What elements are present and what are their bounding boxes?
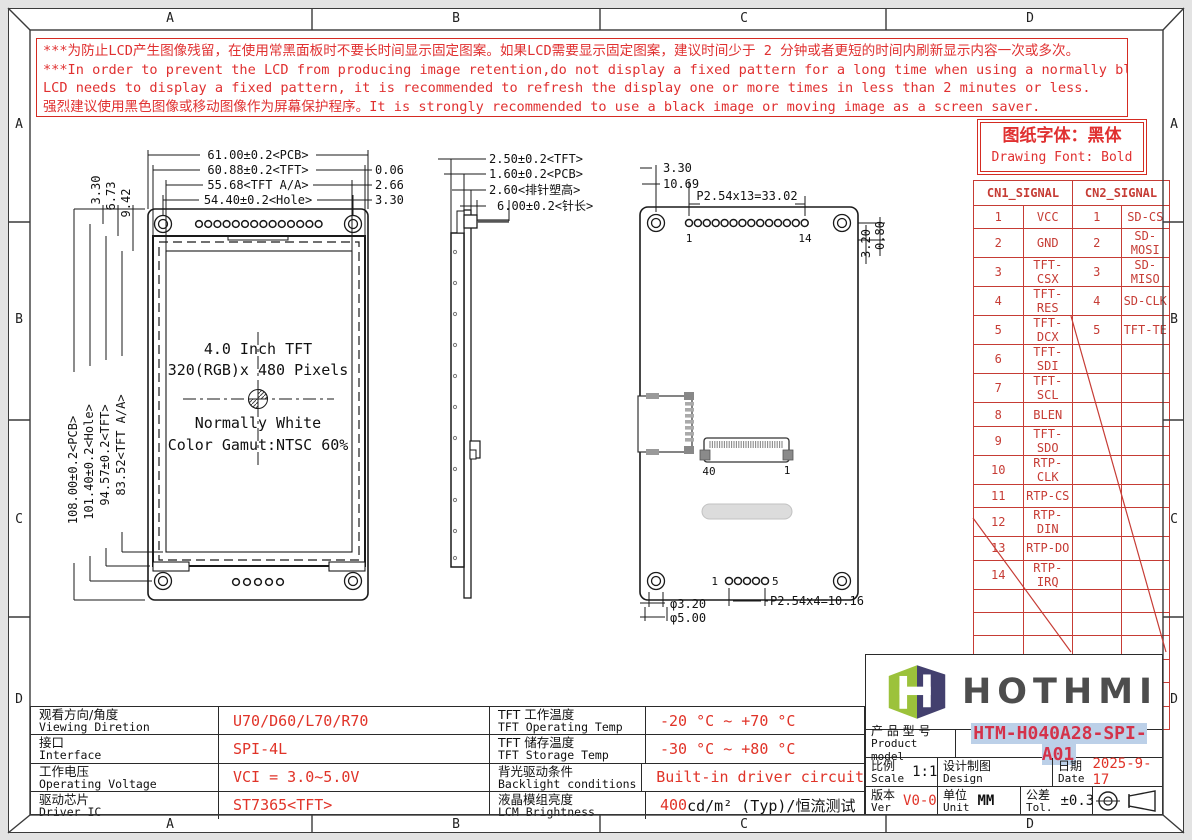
- third-angle-projection-icon: [1095, 788, 1161, 814]
- cn2-pin-empty: [1073, 484, 1122, 507]
- cn2-header: CN2_SIGNAL: [1073, 181, 1170, 206]
- empty-cell: [1121, 589, 1170, 612]
- cn1-name: TFT-CSX: [1023, 258, 1073, 287]
- zone-col-label: C: [734, 11, 754, 27]
- cn2-name: SD-CLK: [1121, 287, 1170, 316]
- cn1-name: TFT-SDI: [1023, 345, 1073, 374]
- warning-line: ***In order to prevent the LCD from prod…: [43, 61, 1123, 80]
- zone-col-label: D: [1020, 817, 1040, 833]
- spec-row: 驱动芯片 Driver IC ST7365<TFT>: [31, 792, 489, 819]
- warning-line: ***为防止LCD产生图像残留，在使用常黑面板时不要长时间显示固定图案。如果LC…: [43, 42, 1123, 61]
- signal-row: 10RTP-CLK: [974, 455, 1170, 484]
- cn2-pin-empty: [1073, 345, 1122, 374]
- scale-design-date-row: 比例 Scale 1:1 设计制图 Design 日期 Date 2025-9-…: [866, 758, 1162, 787]
- spec-label-en: Viewing Diretion: [39, 721, 218, 733]
- signal-row: 1VCC1SD-CS: [974, 206, 1170, 229]
- warning-line: 强烈建议使用黑色图像或移动图像作为屏幕保护程序。It is strongly r…: [43, 98, 1123, 117]
- signal-row: 8BLEN: [974, 403, 1170, 426]
- spec-value: VCI = 3.0~5.0V: [219, 764, 489, 791]
- spec-row: 工作电压 Operating Voltage VCI = 3.0~5.0V: [31, 764, 489, 792]
- spec-label: TFT 工作温度 TFT Operating Temp: [490, 707, 646, 734]
- cn2-name-empty: [1121, 508, 1170, 537]
- cn2-name: SD-MISO: [1121, 258, 1170, 287]
- cn2-name-empty: [1121, 537, 1170, 560]
- signal-row: 3TFT-CSX3SD-MISO: [974, 258, 1170, 287]
- cn1-pin: 5: [974, 316, 1024, 345]
- title-block: HOTHMI 产 品 型 号 Product model HTM-H040A28…: [865, 654, 1163, 815]
- scale-label-stack: 比例 Scale: [866, 760, 904, 785]
- spec-label: 液晶模组亮度 LCM Brightness: [490, 792, 646, 819]
- spec-row: 液晶模组亮度 LCM Brightness 400 cd/m² (Typ)/恒流…: [490, 792, 864, 819]
- spec-label-en: Driver IC: [39, 806, 218, 818]
- cn1-name: TFT-RES: [1023, 287, 1073, 316]
- spec-label-en: LCM Brightness: [498, 806, 645, 818]
- zone-col-label: C: [734, 817, 754, 833]
- cn1-pin: 3: [974, 258, 1024, 287]
- product-value-cell: HTM-H040A28-SPI-A01: [956, 730, 1162, 757]
- spec-row: TFT 储存温度 TFT Storage Temp -30 °C ~ +80 °…: [490, 735, 864, 763]
- spec-value: SPI-4L: [219, 735, 489, 762]
- product-row: 产 品 型 号 Product model HTM-H040A28-SPI-A0…: [866, 730, 1162, 758]
- cn1-name: RTP-CLK: [1023, 455, 1073, 484]
- cn2-pin-empty: [1073, 426, 1122, 455]
- cn1-name: RTP-CS: [1023, 484, 1073, 507]
- date-label-stack: 日期 Date: [1053, 760, 1085, 785]
- spec-value: U70/D60/L70/R70: [219, 707, 489, 734]
- cn1-name: TFT-DCX: [1023, 316, 1073, 345]
- signal-row: 6TFT-SDI: [974, 345, 1170, 374]
- spec-row: 观看方向/角度 Viewing Diretion U70/D60/L70/R70: [31, 707, 489, 735]
- cn2-name-empty: [1121, 403, 1170, 426]
- cn1-pin: 9: [974, 426, 1024, 455]
- cn1-pin: 14: [974, 560, 1024, 589]
- signal-row: 2GND2SD-MOSI: [974, 229, 1170, 258]
- ver-cell: 版本 Ver V0-0: [866, 787, 938, 815]
- spec-value: Built-in driver circuit: [642, 764, 864, 791]
- spec-label-en: Backlight conditions: [498, 778, 641, 790]
- cn2-pin-empty: [1073, 537, 1122, 560]
- unit-label-en: Unit: [943, 801, 970, 814]
- font-note-cn: 图纸字体：黑体: [981, 123, 1143, 149]
- cn2-name-empty: [1121, 345, 1170, 374]
- zone-row-label: A: [9, 117, 29, 133]
- signal-row: 7TFT-SCL: [974, 374, 1170, 403]
- signal-row: 5TFT-DCX5TFT-TE: [974, 316, 1170, 345]
- unit-cell: 单位 Unit MM: [938, 787, 1021, 815]
- empty-cell: [974, 589, 1024, 612]
- drawing-sheet: A B C D A B C D A B C D A B C D ***为防止LC…: [0, 0, 1192, 840]
- zone-row-label: C: [9, 512, 29, 528]
- cn2-pin: 2: [1073, 229, 1122, 258]
- drawing-font-note-inner: 图纸字体：黑体 Drawing Font: Bold: [980, 122, 1144, 172]
- cn2-name: TFT-TE: [1121, 316, 1170, 345]
- cn1-pin: 1: [974, 206, 1024, 229]
- logo-h-crossbar: [899, 687, 930, 695]
- signal-row-empty: [974, 589, 1170, 612]
- zone-col-label: A: [160, 11, 180, 27]
- cn2-pin-empty: [1073, 560, 1122, 589]
- zone-col-label: A: [160, 817, 180, 833]
- zone-col-label: B: [446, 11, 466, 27]
- empty-cell: [1073, 612, 1122, 635]
- cn1-header: CN1_SIGNAL: [974, 181, 1073, 206]
- cn1-pin: 12: [974, 508, 1024, 537]
- design-cell: 设计制图 Design: [938, 758, 1053, 786]
- zone-row-label: B: [9, 312, 29, 328]
- ver-label-cn: 版本: [871, 789, 895, 801]
- cn1-name: BLEN: [1023, 403, 1073, 426]
- cn2-name: SD-CS: [1121, 206, 1170, 229]
- zone-col-label: D: [1020, 11, 1040, 27]
- tol-label-cn: 公差: [1026, 789, 1053, 801]
- scale-label-cn: 比例: [871, 760, 904, 772]
- cn1-pin: 2: [974, 229, 1024, 258]
- cn1-pin: 13: [974, 537, 1024, 560]
- empty-cell: [1073, 589, 1122, 612]
- signal-row: 12RTP-DIN: [974, 508, 1170, 537]
- cn2-name: SD-MOSI: [1121, 229, 1170, 258]
- design-label-stack: 设计制图 Design: [938, 760, 991, 785]
- empty-cell: [1121, 612, 1170, 635]
- spec-label-cn: 驱动芯片: [39, 793, 218, 806]
- signal-row: 11RTP-CS: [974, 484, 1170, 507]
- unit-label-stack: 单位 Unit: [938, 789, 970, 814]
- spec-value: ST7365<TFT>: [219, 792, 489, 819]
- cn2-name-empty: [1121, 426, 1170, 455]
- cn2-name-empty: [1121, 455, 1170, 484]
- cn2-pin-empty: [1073, 374, 1122, 403]
- date-cell: 日期 Date 2025-9-17: [1053, 758, 1162, 786]
- unit-label-cn: 单位: [943, 789, 970, 801]
- spec-label: 背光驱动条件 Backlight conditions: [490, 764, 642, 791]
- brand-wordmark: HOTHMI: [962, 672, 1158, 712]
- empty-cell: [974, 612, 1024, 635]
- spec-label: TFT 储存温度 TFT Storage Temp: [490, 735, 646, 762]
- signal-row: 14RTP-IRQ: [974, 560, 1170, 589]
- product-label-stack: 产 品 型 号 Product model: [866, 725, 955, 763]
- projection-symbol-cell: [1093, 787, 1162, 815]
- cn1-pin: 8: [974, 403, 1024, 426]
- scale-value: 1:1: [912, 764, 937, 780]
- signal-row: 4TFT-RES4SD-CLK: [974, 287, 1170, 316]
- zone-row-label: D: [9, 692, 29, 708]
- drawing-font-note: 图纸字体：黑体 Drawing Font: Bold: [977, 119, 1147, 175]
- spec-label-en: TFT Storage Temp: [498, 749, 645, 761]
- spec-table-left: 观看方向/角度 Viewing Diretion U70/D60/L70/R70…: [30, 706, 490, 815]
- retention-warning-box: ***为防止LCD产生图像残留，在使用常黑面板时不要长时间显示固定图案。如果LC…: [36, 38, 1128, 117]
- zone-row-label: A: [1164, 117, 1184, 133]
- spec-label: 工作电压 Operating Voltage: [31, 764, 219, 791]
- scale-label-en: Scale: [871, 772, 904, 785]
- brightness-value: 400: [660, 796, 687, 814]
- spec-row: 接口 Interface SPI-4L: [31, 735, 489, 763]
- signal-table: CN1_SIGNAL CN2_SIGNAL 1VCC1SD-CS 2GND2SD…: [973, 180, 1170, 730]
- brightness-unit: cd/m² (Typ)/恒流测试: [687, 795, 855, 816]
- ver-label-en: Ver: [871, 801, 895, 814]
- tol-label-stack: 公差 Tol.: [1021, 789, 1053, 814]
- cn1-pin: 11: [974, 484, 1024, 507]
- spec-table-mid: TFT 工作温度 TFT Operating Temp -20 °C ~ +70…: [490, 706, 865, 815]
- signal-table-header: CN1_SIGNAL CN2_SIGNAL: [974, 181, 1170, 206]
- tol-cell: 公差 Tol. ±0.3: [1021, 787, 1093, 815]
- unit-value: MM: [978, 793, 995, 809]
- design-label-cn: 设计制图: [943, 760, 991, 772]
- cn1-name: RTP-DIN: [1023, 508, 1073, 537]
- spec-value: 400 cd/m² (Typ)/恒流测试: [646, 792, 864, 819]
- product-label-cn: 产 品 型 号: [871, 725, 955, 737]
- cn1-name: RTP-IRQ: [1023, 560, 1073, 589]
- font-note-en: Drawing Font: Bold: [981, 149, 1143, 167]
- cn1-name: VCC: [1023, 206, 1073, 229]
- date-label-en: Date: [1058, 772, 1085, 785]
- spec-label: 观看方向/角度 Viewing Diretion: [31, 707, 219, 734]
- warning-line: LCD needs to display a fixed pattern, it…: [43, 79, 1123, 98]
- cn1-name: TFT-SCL: [1023, 374, 1073, 403]
- date-label-cn: 日期: [1058, 760, 1085, 772]
- cn2-pin-empty: [1073, 455, 1122, 484]
- product-label: 产 品 型 号 Product model: [866, 730, 956, 757]
- ver-label-stack: 版本 Ver: [866, 789, 895, 814]
- cn2-pin-empty: [1073, 508, 1122, 537]
- empty-cell: [1023, 589, 1073, 612]
- date-value: 2025-9-17: [1093, 756, 1163, 788]
- spec-label-en: Interface: [39, 749, 218, 761]
- cn2-name-empty: [1121, 374, 1170, 403]
- spec-label-cn: 背光驱动条件: [498, 765, 641, 778]
- logo-row: HOTHMI: [866, 655, 1162, 730]
- tol-value: ±0.3: [1061, 793, 1095, 809]
- cn1-pin: 10: [974, 455, 1024, 484]
- cn2-pin: 1: [1073, 206, 1122, 229]
- spec-label-en: TFT Operating Temp: [498, 721, 645, 733]
- spec-label: 接口 Interface: [31, 735, 219, 762]
- ver-value: V0-0: [903, 793, 937, 809]
- spec-label-cn: 工作电压: [39, 765, 218, 778]
- tol-label-en: Tol.: [1026, 801, 1053, 814]
- spec-label-cn: 液晶模组亮度: [498, 793, 645, 806]
- cn1-name: GND: [1023, 229, 1073, 258]
- cn2-pin-empty: [1073, 403, 1122, 426]
- empty-cell: [1023, 612, 1073, 635]
- spec-row: 背光驱动条件 Backlight conditions Built-in dri…: [490, 764, 864, 792]
- design-label-en: Design: [943, 772, 991, 785]
- cn2-pin: 5: [1073, 316, 1122, 345]
- cn2-name-empty: [1121, 560, 1170, 589]
- spec-value: -30 °C ~ +80 °C: [646, 735, 864, 762]
- cn1-name: TFT-SDO: [1023, 426, 1073, 455]
- signal-row: 13RTP-DO: [974, 537, 1170, 560]
- cn1-name: RTP-DO: [1023, 537, 1073, 560]
- ver-unit-tol-row: 版本 Ver V0-0 单位 Unit MM 公差 Tol. ±0.3: [866, 787, 1162, 815]
- hothmi-logo-icon: [886, 663, 948, 721]
- cn1-pin: 6: [974, 345, 1024, 374]
- cn2-name-empty: [1121, 484, 1170, 507]
- scale-cell: 比例 Scale 1:1: [866, 758, 938, 786]
- signal-row-empty: [974, 612, 1170, 635]
- zone-col-label: B: [446, 817, 466, 833]
- spec-label: 驱动芯片 Driver IC: [31, 792, 219, 819]
- signal-row: 9TFT-SDO: [974, 426, 1170, 455]
- spec-value: -20 °C ~ +70 °C: [646, 707, 864, 734]
- cn1-pin: 7: [974, 374, 1024, 403]
- cn1-pin: 4: [974, 287, 1024, 316]
- spec-label-en: Operating Voltage: [39, 778, 218, 790]
- cn2-pin: 3: [1073, 258, 1122, 287]
- cn2-pin: 4: [1073, 287, 1122, 316]
- spec-row: TFT 工作温度 TFT Operating Temp -20 °C ~ +70…: [490, 707, 864, 735]
